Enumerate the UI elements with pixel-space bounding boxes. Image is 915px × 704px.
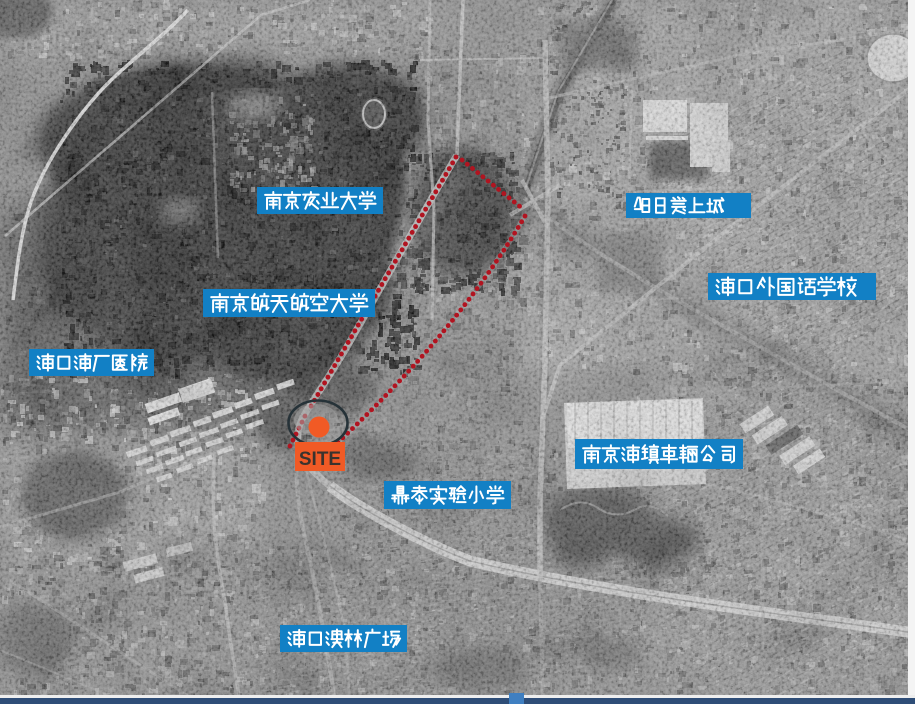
- svg-text:SITE: SITE: [299, 449, 341, 470]
